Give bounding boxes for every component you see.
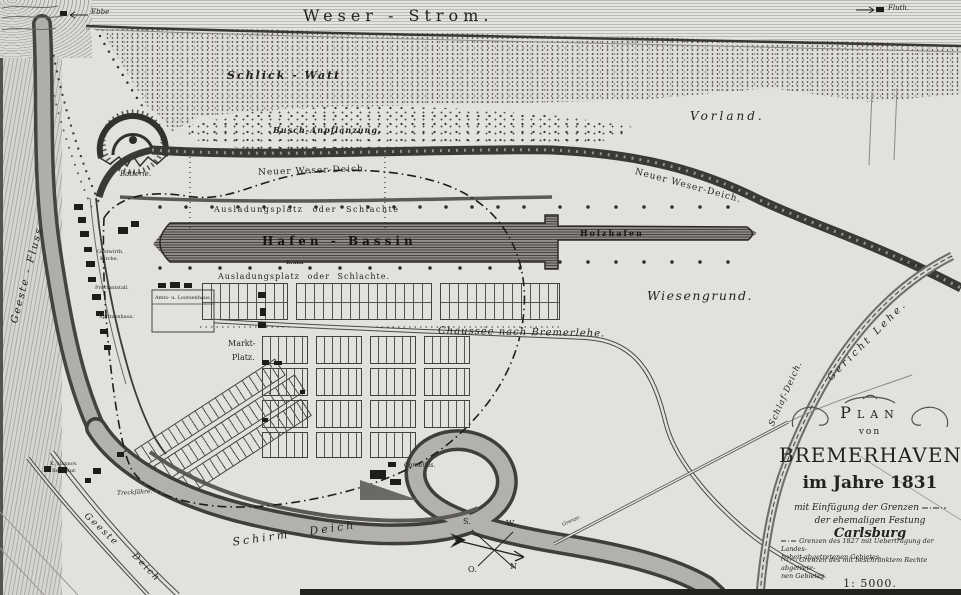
label-batterie: Batterie. <box>120 171 151 178</box>
label-vorland: Vorland. <box>690 110 765 122</box>
label-receptur-1: K. Hannov. <box>50 462 78 467</box>
label-holzhafen: Holzhafen <box>580 229 644 237</box>
label-markt-2: Platz. <box>232 354 255 362</box>
title-sub2: der ehemaligen Festung <box>815 516 926 526</box>
legend1-dashdot-icon <box>781 538 797 543</box>
title-plan: Plan <box>779 403 961 422</box>
building-marks <box>44 7 884 485</box>
label-receptur-2: Receptur. <box>52 469 76 474</box>
label-ausladungsplatz-sued: Ausladungsplatz oder Schlachte. <box>218 273 390 281</box>
label-weser-strom: Weser - Strom. <box>303 8 493 24</box>
legend1-line1: Grenzen des 1827 mit Uebertragung der La… <box>781 537 934 553</box>
compass-s: S. <box>463 518 471 526</box>
bremerhaven-map-1831: Ebbe Fluth. Weser - Strom. Schlick - Wat… <box>0 0 961 595</box>
label-krahn: Krahn <box>286 261 304 266</box>
scan-edge-bar <box>300 589 961 595</box>
title-sub1: mit Einfügung der Grenzen <box>794 503 919 513</box>
label-gastwirth: Gastwirth. <box>97 250 124 255</box>
label-cornelius: Cornelius. <box>404 463 435 469</box>
label-wiesengrund: Wiesengrund. <box>647 290 753 303</box>
title-cartouche: Plan von BREMERHAVEN im Jahre 1831 mit E… <box>779 393 961 593</box>
compass-o: O. <box>468 566 477 574</box>
legend2-dotted-icon <box>781 557 797 562</box>
compass-w: W. <box>506 520 515 528</box>
title-name: BREMERHAVEN <box>779 443 961 467</box>
label-proviantstall: Proviantstall. <box>95 286 129 291</box>
compass-n: N <box>510 563 517 571</box>
label-ausladungsplatz-nord: Ausladungsplatz oder Schlachte <box>214 206 400 214</box>
label-schlick-watt: Schlick - Watt <box>227 70 341 81</box>
title-year: im Jahre 1831 <box>779 473 961 493</box>
label-fluth: Fluth. <box>888 5 909 12</box>
label-amtshaus: Amts- u. Lootsenhaus. <box>155 296 211 301</box>
label-ebbe: Ebbe <box>91 9 109 16</box>
label-spritzenhaus: Spritzenhaus. <box>99 315 134 320</box>
dashdot-symbol <box>922 505 946 511</box>
title-von: von <box>779 427 961 437</box>
legend2-line1: Grenzen des mit beschränktem Rechte abge… <box>781 556 927 572</box>
label-kirche: Kirche. <box>100 257 118 262</box>
label-markt-1: Markt- <box>228 340 256 348</box>
label-hafen-bassin: Hafen - Bassin <box>262 235 417 247</box>
label-busch-anpflanzung: Busch-Anpflanzung. <box>273 126 382 134</box>
